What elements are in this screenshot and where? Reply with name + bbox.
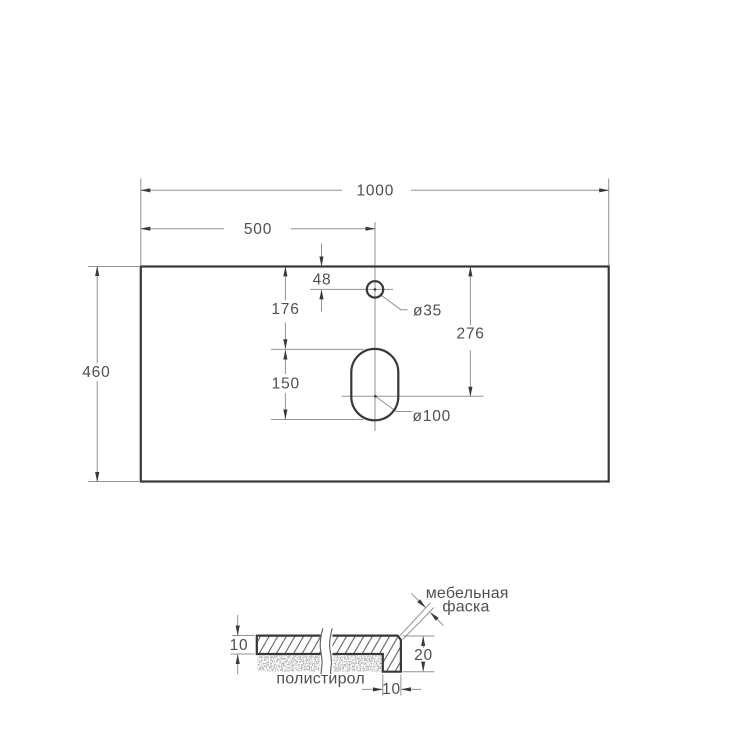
svg-text:150: 150 [272,375,300,392]
svg-text:460: 460 [82,364,110,381]
svg-text:500: 500 [244,221,272,238]
svg-text:ø35: ø35 [413,303,442,320]
svg-text:фаска: фаска [442,599,489,616]
svg-text:ø100: ø100 [413,408,452,425]
svg-text:10: 10 [230,637,249,654]
svg-text:полистирол: полистирол [276,670,365,687]
svg-text:20: 20 [414,647,433,664]
svg-text:1000: 1000 [356,183,394,200]
svg-text:48: 48 [313,271,332,288]
svg-text:276: 276 [456,326,484,343]
svg-text:10: 10 [382,681,401,698]
svg-text:176: 176 [271,301,299,318]
